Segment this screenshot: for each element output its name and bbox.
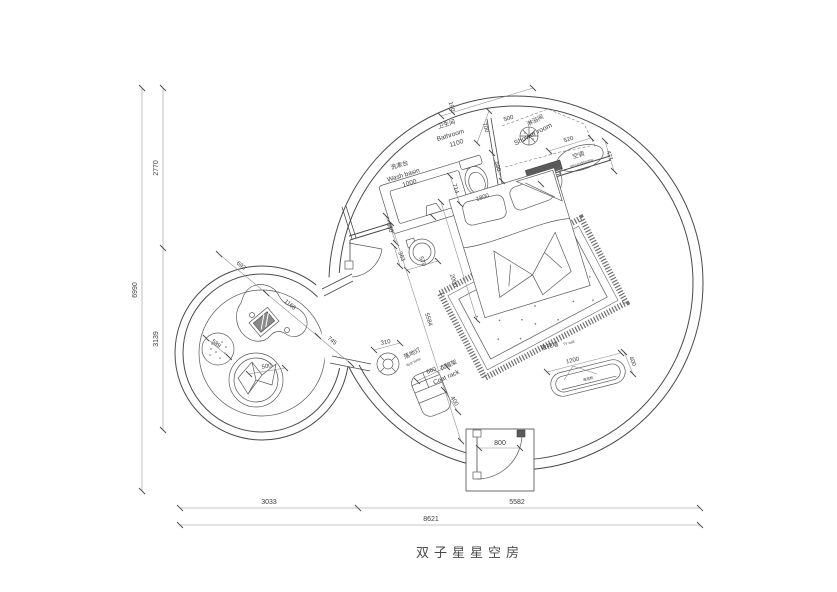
dim-400-tv: 400 bbox=[627, 356, 637, 368]
tv-cabinet-label: 电视柜 bbox=[582, 375, 594, 383]
dim-660: 660 bbox=[426, 366, 438, 376]
floor-lamp bbox=[377, 353, 399, 375]
ac-label-cn: 空调 bbox=[572, 150, 586, 161]
tv-cabinet: 电视柜 bbox=[548, 357, 628, 399]
entrance-vestibule: 800 bbox=[466, 429, 534, 491]
floor-plan-drawing: 6990 2770 3139 3033 5582 8621 双子星星空房 bbox=[0, 0, 837, 592]
washbasin-label-cn: 洗漱台 bbox=[390, 159, 410, 172]
dim-1166: 1166 bbox=[283, 299, 297, 312]
dim-2000: 2000 bbox=[448, 273, 458, 288]
tv-wall-label-en: TV wall bbox=[563, 340, 575, 347]
left-dimension-lines: 6990 2770 3139 bbox=[132, 85, 166, 494]
dim-190: 190 bbox=[447, 101, 456, 113]
dim-800: 800 bbox=[494, 440, 506, 447]
dim-363: 363 bbox=[396, 251, 406, 263]
dim-3139: 3139 bbox=[153, 331, 160, 347]
dim-589: 589 bbox=[210, 339, 222, 350]
dim-520: 520 bbox=[563, 136, 575, 145]
shower-label-en: Shower room bbox=[513, 122, 553, 147]
floor-plan-sheet: 6990 2770 3139 3033 5582 8621 双子星星空房 bbox=[0, 0, 837, 592]
dim-5582: 5582 bbox=[509, 499, 525, 506]
dim-3033: 3033 bbox=[261, 499, 277, 506]
dim-1100: 1100 bbox=[449, 138, 465, 149]
dim-5584: 5584 bbox=[423, 312, 433, 327]
dim-693: 693 bbox=[235, 261, 247, 272]
kidney-desk bbox=[236, 285, 307, 342]
drawing-title: 双子星星空房 bbox=[416, 545, 524, 560]
dim-421: 421 bbox=[605, 150, 614, 162]
round-chair bbox=[229, 353, 283, 407]
tv-wall-label-cn: 电视墙 bbox=[540, 340, 559, 352]
dim-8621: 8621 bbox=[423, 516, 439, 523]
dim-2770: 2770 bbox=[153, 160, 160, 176]
bathroom-label-cn: 卫生间 bbox=[437, 118, 457, 131]
bottom-dimension-lines: 3033 5582 8621 bbox=[177, 499, 703, 528]
dim-6990: 6990 bbox=[132, 282, 139, 298]
